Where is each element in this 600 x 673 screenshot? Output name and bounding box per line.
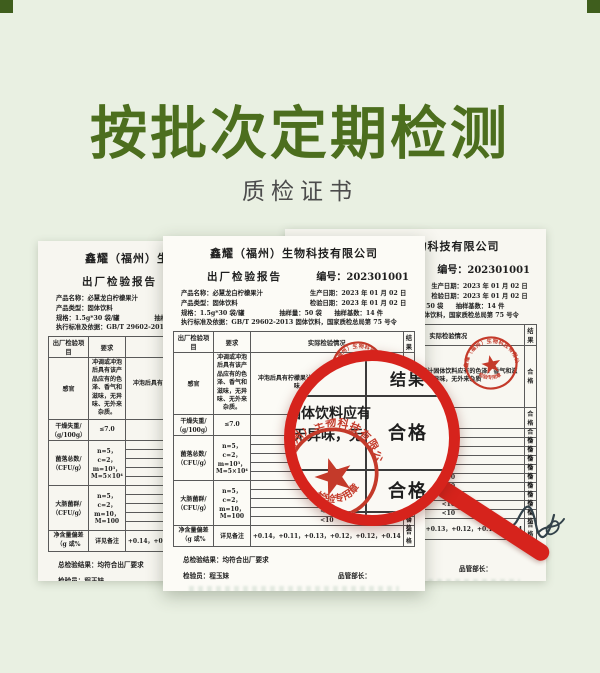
cell-item: 感官 <box>48 358 88 420</box>
sample-result: 合格 <box>525 429 535 438</box>
report-title-row: 出厂检验报告 编号：202301001 <box>207 268 409 284</box>
report-fields: 产品名称：必慧龙白柠檬果汁 生产日期：2023 年 01 月 02 日 产品类型… <box>181 289 413 328</box>
cell-result: 合格 <box>403 525 414 546</box>
field-production-date: 生产日期：2023 年 01 月 02 日 <box>431 282 534 292</box>
inspector-line: 检验员：程玉妹 <box>183 570 229 580</box>
sample-result: 合格 <box>525 447 535 456</box>
magnifier-lens: 结果 固体饮料应有 无异味，无 合格 合格 合格 鑫耀（福州）生物科技有限公司 … <box>284 350 460 526</box>
field-product-type: 产品类型：固体饮料 <box>181 299 310 309</box>
field-inspection-date: 检验日期：2023 年 01 月 02 日 <box>310 299 413 309</box>
cell-actual: +0.14，+0.11，+0.13，+0.12，+0.12，+0.14 <box>250 525 403 546</box>
field-sample-base: 抽样基数：14 件 <box>334 309 413 319</box>
company-stamp-right-doc: 鑫耀（福州）生物科技有限公司 检验专用章 <box>455 327 526 398</box>
header-result: 结果 <box>403 332 414 353</box>
lens-result-header: 结果 <box>367 361 449 395</box>
sign-off-row: 检验员：程玉妹 品管部长： <box>183 570 405 580</box>
cell-requirement: 冲调或冲泡后具有该产品应有的色泽、香气和滋味，无异味、无外来杂质。 <box>89 358 126 420</box>
field-sample-base: 抽样基数：14 件 <box>456 302 534 312</box>
field-inspection-date: 检验日期：2023 年 01 月 02 日 <box>431 292 534 302</box>
sample-result: 合格 <box>525 456 535 465</box>
cell-result: 合格 <box>525 407 536 428</box>
field-product-name: 产品名称：必慧龙白柠檬果汁 <box>181 289 310 299</box>
cell-item: 大肠菌群/（CFU/g） <box>48 485 88 530</box>
header-requirement: 要求 <box>89 337 126 358</box>
header-result: 结果 <box>525 325 536 346</box>
page-title: 按批次定期检测 <box>0 88 600 170</box>
cell-item: 干燥失重/（g/100g） <box>173 414 213 435</box>
promo-page: { "page": { "title": "按批次定期检测", "subtitl… <box>0 0 600 673</box>
field-sample-qty: 抽样量：50 袋 <box>279 309 334 319</box>
cell-result: 合格 合格 合格 合格 合格 <box>525 428 536 473</box>
header-item: 出厂检验项目 <box>48 337 88 358</box>
company-name: 鑫耀（福州）生物科技有限公司 <box>163 245 425 261</box>
ink-bleed-ghost <box>189 586 399 591</box>
cell-item: 菌落总数/（CFU/g） <box>48 440 88 485</box>
corner-square-right <box>587 0 600 13</box>
field-spec: 规格：1.5g*30 袋/罐 <box>56 314 154 324</box>
cell-item: 净含量偏差（g 或% <box>48 530 88 551</box>
field-spec: 规格：1.5g*30 袋/罐 <box>181 309 279 319</box>
cell-item: 净含量偏差（g 或% <box>173 525 213 546</box>
inspector-line: 检验员：程玉妹 <box>58 575 104 581</box>
cell-requirement: 详见备注 <box>89 530 126 551</box>
field-production-date: 生产日期：2023 年 01 月 02 日 <box>310 289 413 299</box>
cell-item: 感官 <box>173 353 213 415</box>
report-number: 编号：202301001 <box>437 261 530 276</box>
sample-result: 合格 <box>525 438 535 447</box>
cell-result: 合格 <box>525 346 536 408</box>
stamp-star-icon <box>480 353 502 375</box>
cell-requirement: 冲调或冲泡后具有该产品应有的色泽、香气和滋味，无异味、无外来杂质。 <box>214 353 251 415</box>
cell-item: 干燥失重/（g/100g） <box>48 419 88 440</box>
sample-result: 合格 <box>525 483 535 492</box>
cell-requirement: 详见备注 <box>214 525 251 546</box>
page-subtitle: 质检证书 <box>0 172 600 206</box>
table-row: 净含量偏差（g 或% 详见备注 +0.14，+0.11，+0.13，+0.12，… <box>173 525 414 546</box>
qa-manager-label: 品管部长： <box>338 570 371 580</box>
cell-requirement: ≤7.0 <box>214 414 251 435</box>
sample-result: 合格 <box>525 474 535 483</box>
field-standard: 执行标准及依据：GB/T 29602-2013 固体饮料，国家质检总局第 75 … <box>181 318 397 328</box>
cell-requirement: n=5，c=2，m=10³，M=5×10⁴ <box>89 440 126 485</box>
cell-requirement: ≤7.0 <box>89 419 126 440</box>
report-number: 编号：202301001 <box>316 268 409 283</box>
cell-item: 大肠菌群/（CFU/g） <box>173 480 213 525</box>
summary-line: 总检验结果：均符合出厂要求 <box>183 554 425 564</box>
report-title: 出厂检验报告 <box>207 269 282 284</box>
qa-manager-label: 品管部长： <box>459 563 492 573</box>
cell-requirement: n=5，c=2，m=10，M=100 <box>89 485 126 530</box>
cell-requirement: n=5，c=2，m=10³，M=5×10⁴ <box>214 435 251 480</box>
corner-square-left <box>0 0 13 13</box>
cell-item: 菌落总数/（CFU/g） <box>173 435 213 480</box>
report-title: 出厂检验报告 <box>82 274 157 289</box>
header-item: 出厂检验项目 <box>173 332 213 353</box>
cell-requirement: n=5，c=2，m=10，M=100 <box>214 480 251 525</box>
sample-result: 合格 <box>525 465 535 473</box>
header-requirement: 要求 <box>214 332 251 353</box>
